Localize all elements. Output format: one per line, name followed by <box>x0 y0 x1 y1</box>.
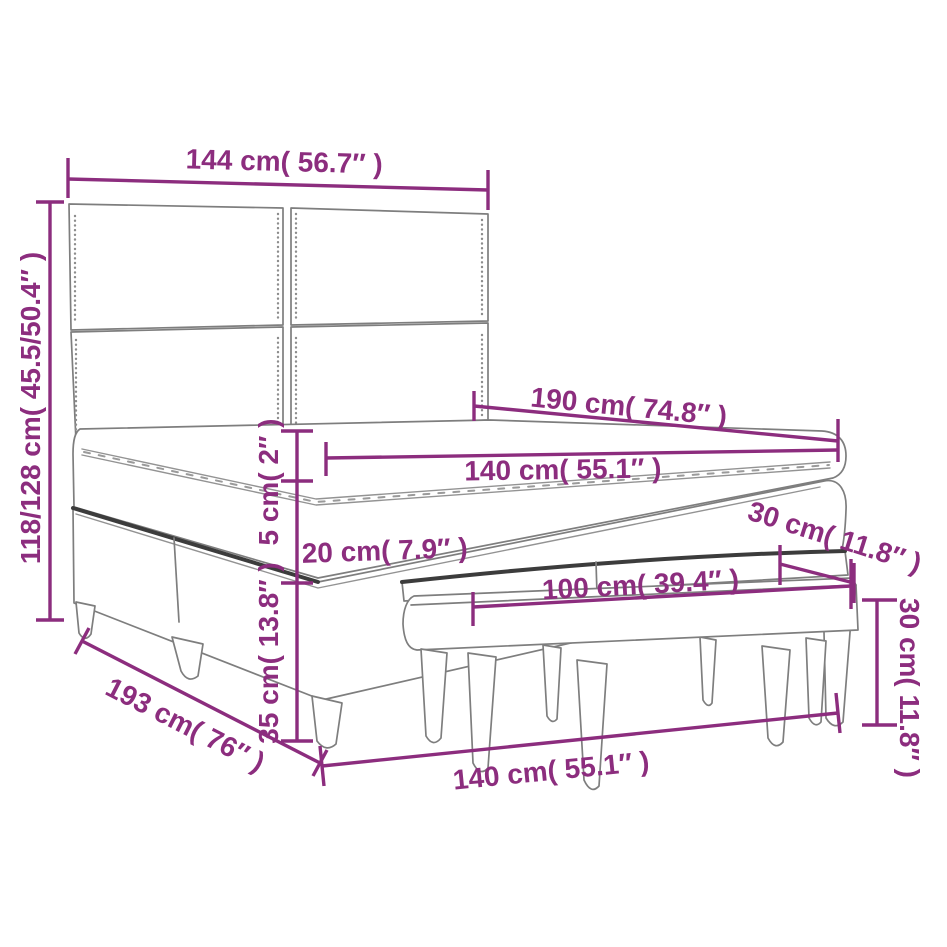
headboard-panel-bottom-right <box>291 323 488 428</box>
headboard-panel-top-left <box>69 204 283 330</box>
bench-leg-back-2 <box>700 637 716 705</box>
dim-bench-height <box>862 600 897 725</box>
label-base-height: 35 cm( 13.8″ ) <box>253 562 284 744</box>
bed-drawing <box>69 204 853 748</box>
headboard <box>69 204 488 441</box>
bench-leg <box>468 653 496 772</box>
bed-leg-middle <box>172 637 203 679</box>
label-bed-height: 118/128 cm( 45.5/50.4″ ) <box>15 252 46 564</box>
dimension-tick <box>320 746 324 786</box>
bench-leg <box>806 638 826 725</box>
label-topper-thickness: 5 cm( 2″ ) <box>253 418 284 545</box>
bed-dimension-diagram: 144 cm( 56.7″ ) 118/128 cm( 45.5/50.4″ )… <box>0 0 947 947</box>
label-mattress-thickness: 20 cm( 7.9″ ) <box>301 532 468 569</box>
label-mattress-width: 140 cm( 55.1″ ) <box>464 452 662 486</box>
bed-leg-corner <box>312 696 342 748</box>
dimension-line <box>68 179 488 190</box>
diagram-canvas: 144 cm( 56.7″ ) 118/128 cm( 45.5/50.4″ )… <box>0 0 947 947</box>
bench-leg <box>421 649 447 743</box>
bench-leg-back-1 <box>543 645 561 721</box>
label-bench-height: 30 cm( 11.8″ ) <box>894 598 925 778</box>
headboard-panel-top-right <box>291 208 488 325</box>
bench-leg <box>762 646 790 746</box>
label-headboard-width: 144 cm( 56.7″ ) <box>185 143 383 179</box>
headboard-panel-bottom-left <box>71 327 283 441</box>
